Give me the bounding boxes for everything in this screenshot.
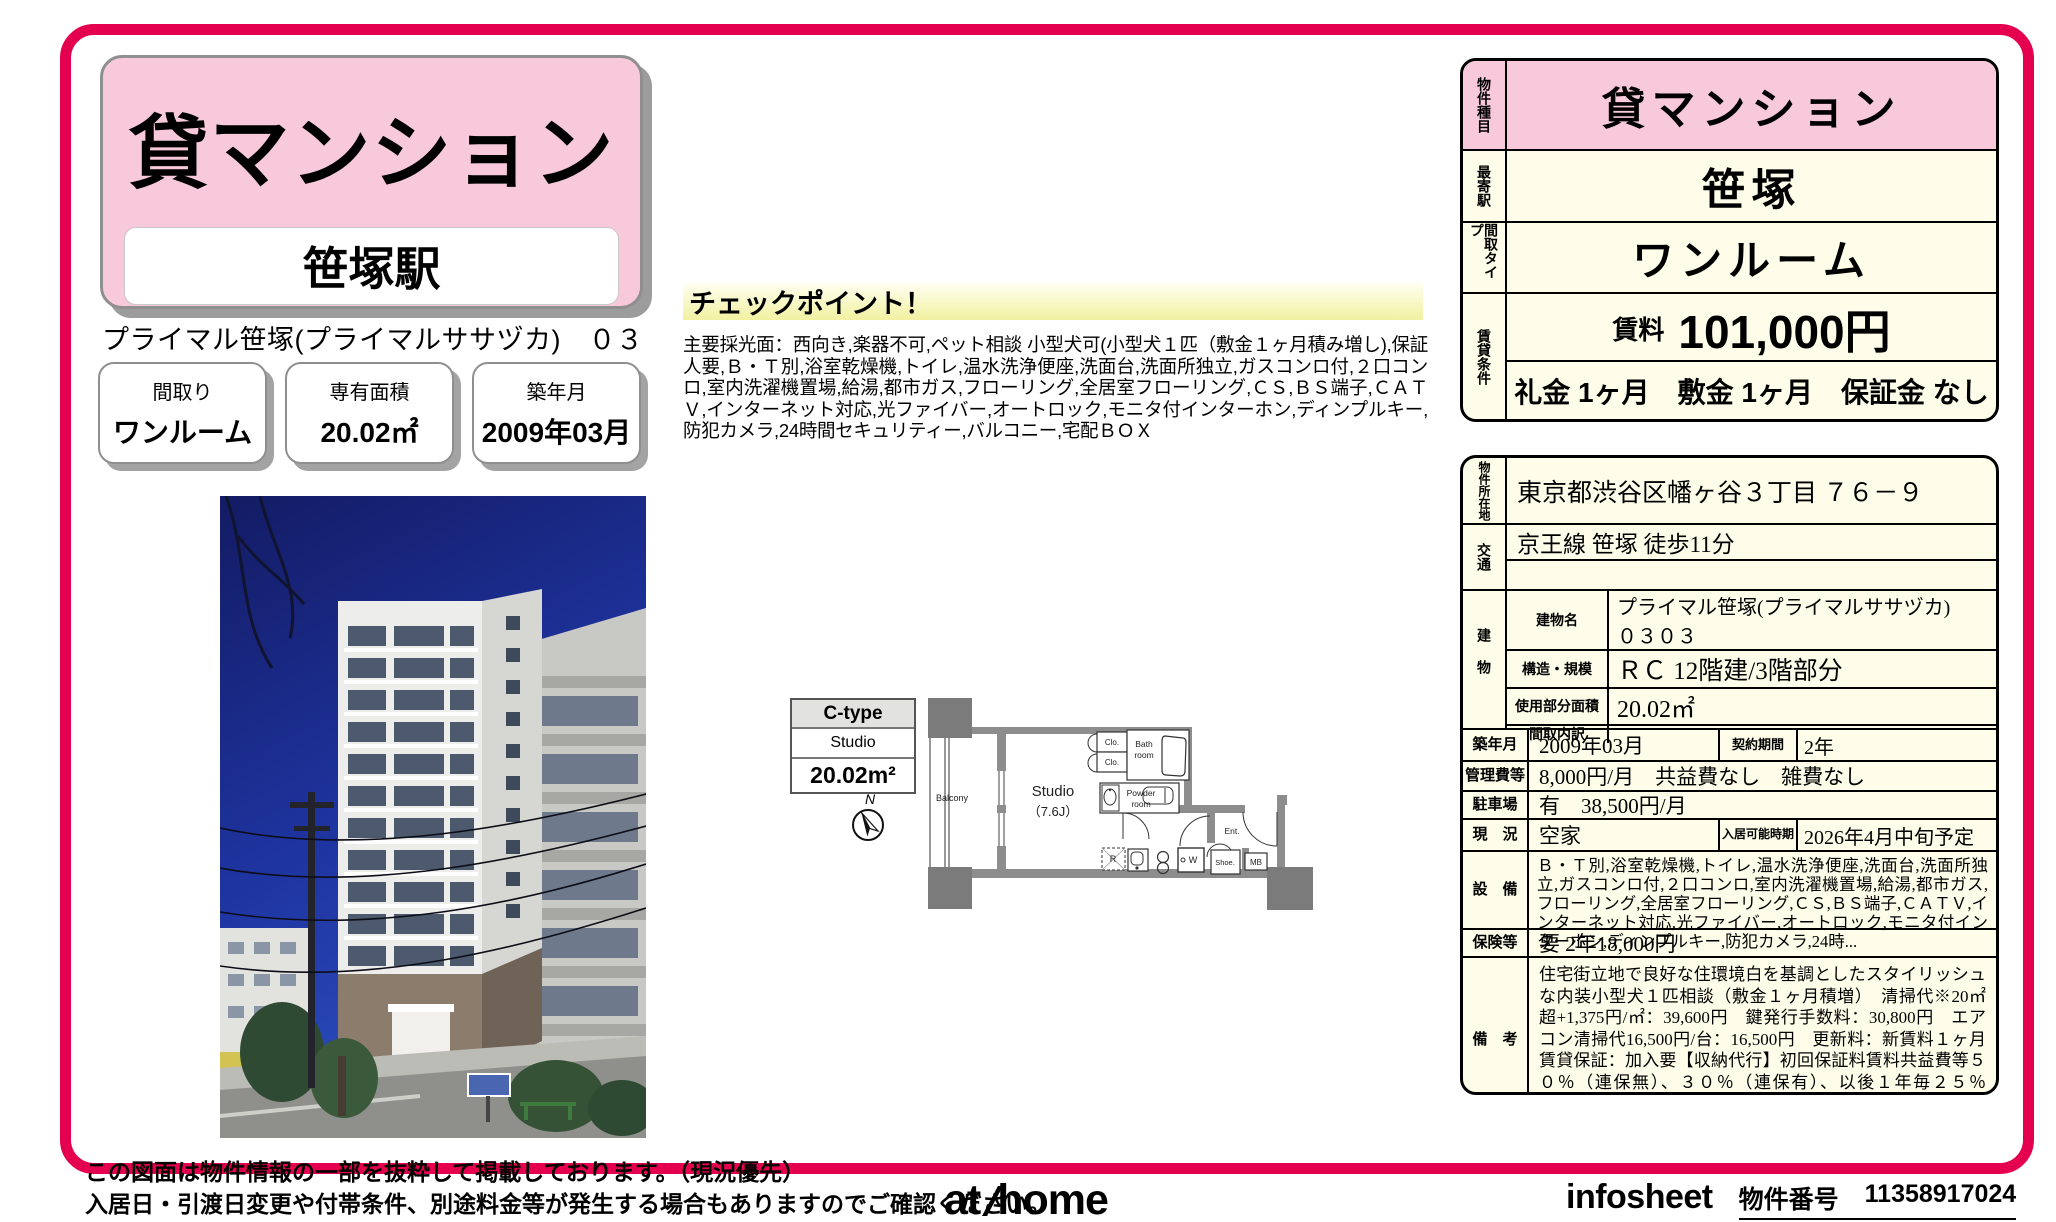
contract-period-label: 契約期間 [1718, 730, 1798, 760]
insurance-value: 要 2年18,000円 [1529, 930, 1996, 956]
current-status-value: 空家 [1529, 820, 1718, 850]
table-row: 駐車場 有 38,500円/月 [1463, 792, 1996, 820]
disclaimer: この図面は物件情報の一部を抜粋して掲載しております。（現況優先） 入居日・引渡日… [85, 1156, 1051, 1220]
table-row: 備 考 住宅街立地で良好な住環境白を基調としたスタイリッシュな内装小型犬１匹相談… [1463, 958, 1996, 1095]
row-label-location: 物件所在地 [1463, 458, 1507, 523]
room-label-bath-2: room [1134, 750, 1153, 760]
row-label-rental-terms: 賃貸条件 [1463, 294, 1507, 419]
title-box: 貸マンション 笹塚駅 [100, 55, 643, 309]
parking-value: 有 38,500円/月 [1529, 792, 1996, 818]
structure-label: 構造・規模 [1507, 651, 1609, 687]
fact-label: 間取り [153, 376, 213, 405]
table-row: 保険等 要 2年18,000円 [1463, 930, 1996, 958]
row-label-layout-type: 間取タイプ [1463, 223, 1507, 292]
table-row: 物件種目 貸マンション [1463, 61, 1996, 151]
room-label-studio-size: （7.6J） [1028, 804, 1079, 819]
table-row: 物件所在地 東京都渋谷区幡ヶ谷３丁目 ７６－９ [1463, 458, 1996, 525]
building-name-value: プライマル笹塚(プライマルササヅカ) ０３０３ [1609, 591, 1996, 649]
property-category: 貸マンション [103, 72, 640, 222]
table-row: 最寄駅 笹塚 [1463, 151, 1996, 223]
disclaimer-line-2: 入居日・引渡日変更や付帯条件、別途料金等が発生する場合もありますのでご確認くださ… [85, 1188, 1051, 1220]
move-in-date-value: 2026年4月中旬予定 [1798, 820, 1996, 850]
used-area-value: 20.02㎡ [1609, 689, 1996, 724]
quick-facts: 間取り ワンルーム 専有面積 20.02㎡ 築年月 2009年03月 [98, 362, 641, 464]
checkpoint-band: チェックポイント！ [683, 283, 1423, 320]
property-type-value: 貸マンション [1507, 61, 1996, 149]
rent-label: 賃料 [1612, 310, 1664, 347]
move-in-date-label: 入居可能時期 [1718, 820, 1798, 850]
table-row: 築年月 2009年03月 契約期間 2年 [1463, 730, 1996, 762]
structure-value: ＲＣ 12階建/3階部分 [1609, 651, 1996, 687]
athome-logo-at: at [944, 1176, 980, 1222]
rent-row: 賃料 101,000円 [1507, 294, 1996, 362]
remarks-label: 備 考 [1463, 958, 1529, 1095]
management-fee-label: 管理費等 [1463, 762, 1529, 790]
property-number: 物件番号 11358917024 [1739, 1180, 2017, 1220]
access-cell: 京王線 笹塚 徒歩11分 [1507, 525, 1996, 589]
room-label-refrigerator: R [1110, 854, 1117, 864]
layout-type-value: ワンルーム [1507, 223, 1996, 292]
fact-layout: 間取り ワンルーム [98, 362, 267, 464]
location-value: 東京都渋谷区幡ヶ谷３丁目 ７６－９ [1507, 458, 1996, 523]
access-line-2 [1507, 561, 1996, 589]
building-name-label: 建物名 [1507, 591, 1609, 649]
built-date-label: 築年月 [1463, 730, 1529, 760]
infosheet-footer: infosheet 物件番号 11358917024 [1566, 1178, 2016, 1220]
remarks-value: 住宅街立地で良好な住環境白を基調としたスタイリッシュな内装小型犬１匹相談（敷金１… [1529, 958, 1996, 1095]
management-fee-value: 8,000円/月 共益費なし 雑費なし [1529, 762, 1996, 790]
floorplan-drawing: Balcony Studio （7.6J） Clo. Clo. Bath roo… [925, 697, 1315, 912]
table-row: 設 備 Ｂ・Ｔ別,浴室乾燥機,トイレ,温水洗浄便座,洗面台,洗面所独立,ガスコン… [1463, 852, 1996, 930]
table-row: 賃貸条件 賃料 101,000円 礼金 1ヶ月 敷金 1ヶ月 保証金 なし [1463, 294, 1996, 419]
table-row: 建物 建物名 プライマル笹塚(プライマルササヅカ) ０３０３ 構造・規模 ＲＣ … [1463, 591, 1996, 730]
room-label-washer: W [1189, 855, 1198, 865]
checkpoint-heading: チェックポイント！ [683, 282, 932, 321]
room-label-bath-1: Bath [1135, 739, 1153, 749]
room-label-shoe: Shoe. [1215, 858, 1235, 867]
room-label-closet-2: Clo. [1105, 758, 1119, 767]
fact-built: 築年月 2009年03月 [472, 362, 641, 464]
built-date-value: 2009年03月 [1529, 730, 1718, 760]
property-number-value: 11358917024 [1865, 1180, 2017, 1216]
building-cell: 建物名 プライマル笹塚(プライマルササヅカ) ０３０３ 構造・規模 ＲＣ 12階… [1507, 591, 1996, 728]
parking-label: 駐車場 [1463, 792, 1529, 818]
equipment-label: 設 備 [1463, 852, 1529, 928]
row-label-nearest-station: 最寄駅 [1463, 151, 1507, 221]
room-label-closet-1: Clo. [1105, 738, 1119, 747]
row-label-property-type: 物件種目 [1463, 61, 1507, 149]
checkpoint-body: 主要採光面：西向き,楽器不可,ペット相談 小型犬可(小型犬１匹（敷金１ヶ月積み増… [683, 334, 1428, 442]
fact-label: 築年月 [527, 376, 587, 405]
contract-period-value: 2年 [1798, 730, 1996, 760]
row-label-building: 建物 [1463, 591, 1507, 728]
room-label-powder-1: Powder [1127, 788, 1156, 798]
table-row: 交通 京王線 笹塚 徒歩11分 [1463, 525, 1996, 591]
used-area-label: 使用部分面積 [1507, 689, 1609, 724]
station-name: 笹塚駅 [303, 233, 441, 299]
fact-value: ワンルーム [113, 411, 252, 451]
deposit-line: 礼金 1ヶ月 敷金 1ヶ月 保証金 なし [1507, 362, 1996, 419]
equipment-value: Ｂ・Ｔ別,浴室乾燥機,トイレ,温水洗浄便座,洗面台,洗面所独立,ガスコンロ付,２… [1529, 852, 1996, 928]
fact-value: 20.02㎡ [320, 411, 418, 451]
room-label-meterbox: MB [1250, 858, 1262, 867]
building-row: 構造・規模 ＲＣ 12階建/3階部分 [1507, 651, 1996, 689]
compass-n-label: N [865, 791, 876, 807]
access-line-1: 京王線 笹塚 徒歩11分 [1507, 525, 1996, 561]
table-row: 現 況 空家 入居可能時期 2026年4月中旬予定 [1463, 820, 1996, 852]
room-label-balcony: Balcony [936, 793, 969, 803]
athome-logo-home: home [997, 1176, 1108, 1222]
property-number-label: 物件番号 [1739, 1180, 1839, 1216]
room-label-entrance: Ent. [1224, 826, 1239, 836]
table-row: 管理費等 8,000円/月 共益費なし 雑費なし [1463, 762, 1996, 792]
room-label-studio: Studio [1032, 783, 1075, 800]
disclaimer-line-1: この図面は物件情報の一部を抜粋して掲載しております。（現況優先） [85, 1156, 1051, 1188]
fact-value: 2009年03月 [482, 411, 631, 451]
fact-label: 専有面積 [330, 376, 410, 405]
row-label-access: 交通 [1463, 525, 1507, 589]
compass-icon: N [838, 788, 898, 850]
insurance-label: 保険等 [1463, 930, 1529, 956]
summary-table: 物件種目 貸マンション 最寄駅 笹塚 間取タイプ ワンルーム 賃貸条件 賃料 1… [1460, 58, 1999, 422]
building-row: 使用部分面積 20.02㎡ [1507, 689, 1996, 726]
floorplan-type: C-type [792, 700, 914, 729]
detail-table: 物件所在地 東京都渋谷区幡ヶ谷３丁目 ７６－９ 交通 京王線 笹塚 徒歩11分 … [1460, 455, 1999, 1095]
building-row: 建物名 プライマル笹塚(プライマルササヅカ) ０３０３ [1507, 591, 1996, 651]
rental-terms-cell: 賃料 101,000円 礼金 1ヶ月 敷金 1ヶ月 保証金 なし [1507, 294, 1996, 419]
current-status-label: 現 況 [1463, 820, 1529, 850]
building-photo [220, 496, 646, 1138]
table-row: 間取タイプ ワンルーム [1463, 223, 1996, 294]
floorplan-layout: Studio [792, 729, 914, 759]
rent-value: 101,000円 [1678, 296, 1890, 362]
infosheet-label: infosheet [1566, 1178, 1713, 1217]
station-box: 笹塚駅 [124, 227, 619, 305]
floorplan-legend: C-type Studio 20.02m² [790, 698, 916, 794]
fact-area: 専有面積 20.02㎡ [285, 362, 454, 464]
infosheet-page: 貸マンション 笹塚駅 プライマル笹塚(プライマルササヅカ) ０３０３ 間取り ワ… [0, 0, 2056, 1222]
room-label-powder-2: room [1131, 799, 1150, 809]
athome-logo: at home [944, 1176, 1108, 1222]
nearest-station-value: 笹塚 [1507, 151, 1996, 221]
